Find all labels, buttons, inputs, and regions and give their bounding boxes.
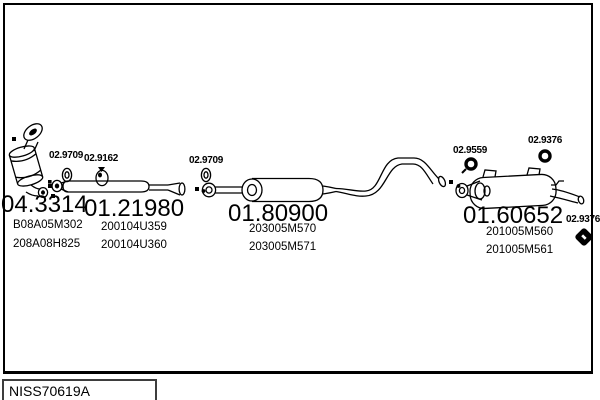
diagram-code: NISS70619A [9, 383, 90, 399]
part-ref: 200104U360 [101, 240, 167, 252]
rubber-mount-icon [574, 227, 594, 247]
part-number-rear-muffler[interactable]: 01.60652 [463, 204, 563, 228]
part-ref: 200104U359 [101, 222, 167, 234]
gasket-ring-icon [201, 168, 210, 181]
hanger-bracket-icon [551, 181, 564, 185]
rubber-mount-icon [462, 159, 476, 173]
part-ref: 208A08H825 [13, 239, 80, 251]
tail-connecting-pipe-drawing [336, 158, 453, 196]
part-ref: 203005M570 [249, 224, 316, 236]
hardware-number[interactable]: 02.9709 [189, 156, 223, 166]
part-ref: 201005M561 [486, 245, 553, 257]
bolt-icon [449, 180, 453, 184]
bolt-icon [12, 137, 16, 141]
part-ref: B08A05M302 [13, 220, 83, 232]
gasket-ring-icon [62, 168, 71, 181]
bolt-icon [195, 187, 199, 191]
bolt-icon [48, 180, 52, 184]
hardware-number[interactable]: 02.9162 [84, 154, 118, 164]
hardware-number[interactable]: 02.9376 [528, 136, 562, 146]
hanger-bracket-icon [483, 170, 496, 177]
diagram-code-box: NISS70619A [2, 379, 157, 400]
pipe-clamp-icon [96, 167, 108, 186]
centre-muffler-drawing [242, 179, 336, 202]
hardware-number[interactable]: 02.9709 [49, 151, 83, 161]
part-number-front-pipe[interactable]: 01.21980 [84, 197, 184, 221]
hardware-number[interactable]: 02.9376 [566, 215, 600, 225]
part-ref: 201005M560 [486, 227, 553, 239]
hardware-number[interactable]: 02.9559 [453, 146, 487, 156]
part-number-catalytic-converter[interactable]: 04.3314 [1, 193, 88, 217]
part-ref: 203005M571 [249, 242, 316, 254]
rubber-mount-icon [540, 151, 550, 161]
catalytic-converter-drawing [8, 120, 55, 198]
exhaust-parts-diagram-page: 02.9709 02.9162 02.9709 02.9559 02.9376 … [0, 0, 600, 400]
hanger-bracket-icon [527, 168, 540, 175]
